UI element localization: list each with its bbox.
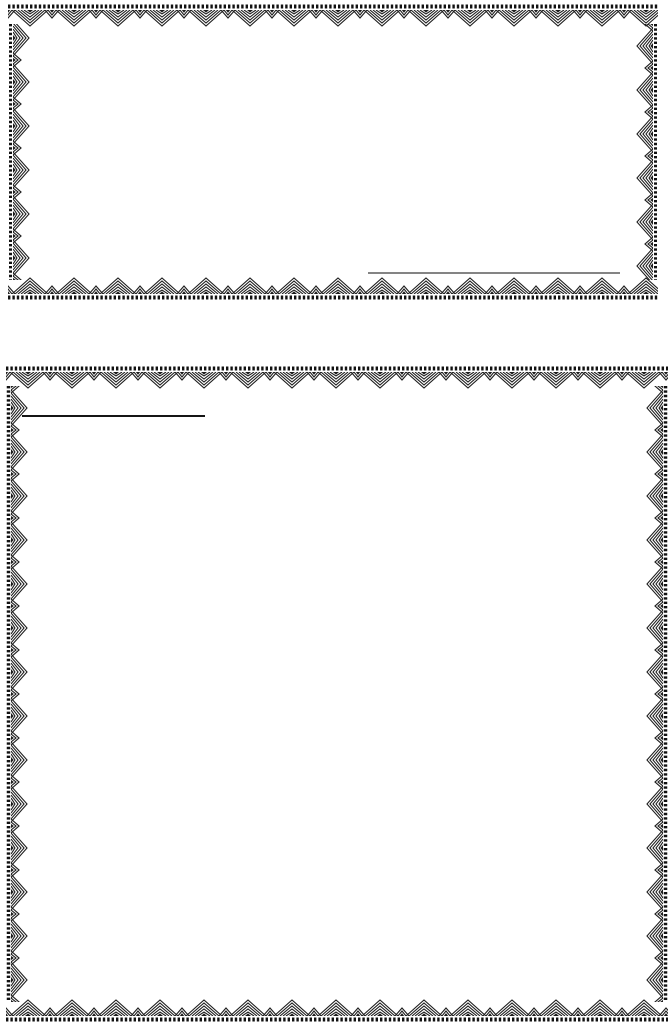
scanned-document-page [0, 0, 670, 1024]
signature-line-top-frame [368, 271, 620, 275]
signature-line-bottom-frame [22, 413, 205, 419]
ornamental-frame-bottom [6, 366, 668, 1022]
frame-top-border-left-edge [8, 24, 34, 280]
frame-top-border-top-edge [8, 4, 658, 30]
frame-bottom-border-top-edge [6, 366, 668, 393]
frame-bottom-border-left-edge [6, 386, 32, 1002]
frame-bottom-border-right-edge [642, 386, 668, 1002]
ornamental-frame-top [8, 4, 658, 300]
frame-top-border-right-edge [632, 24, 658, 280]
frame-bottom-border-bottom-edge [6, 995, 668, 1022]
frame-top-border-bottom-edge [8, 274, 658, 300]
